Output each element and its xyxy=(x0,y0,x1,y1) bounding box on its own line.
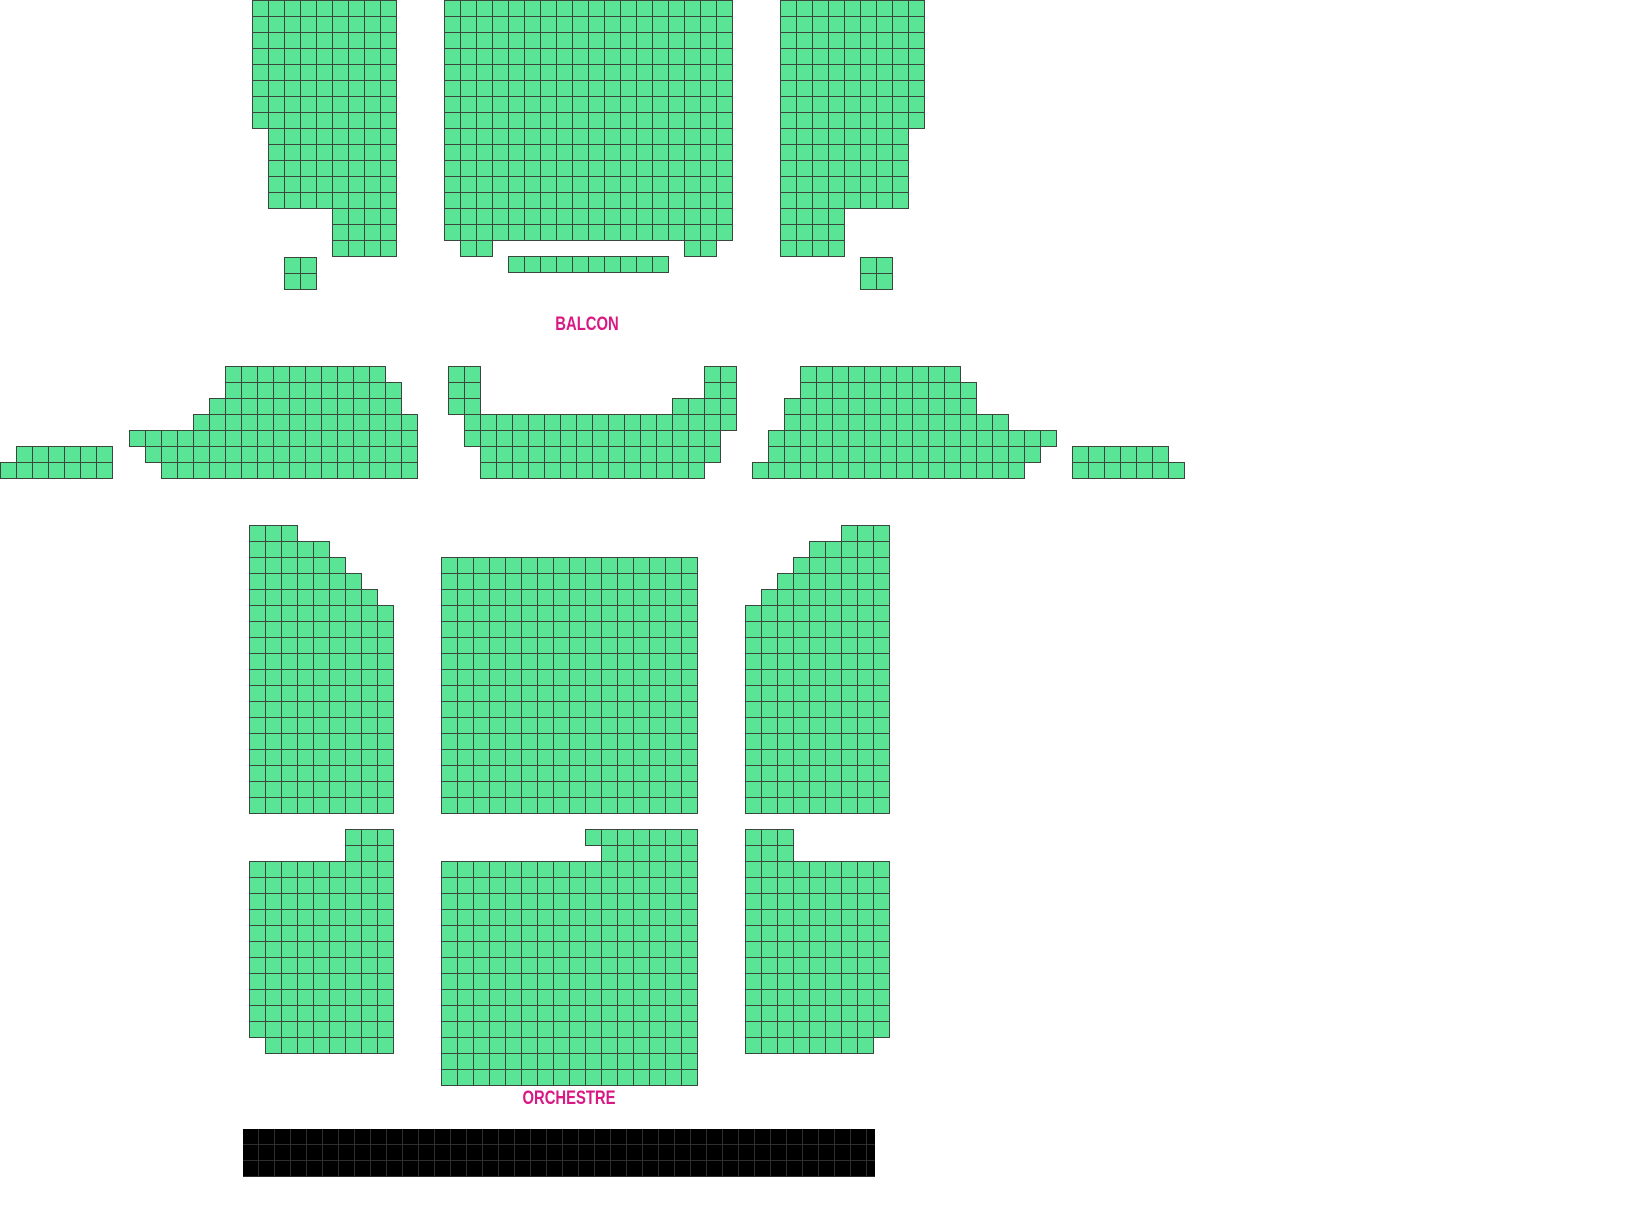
seat-map: BALCON MEZZANINE ORCHESTRE xyxy=(0,0,1626,1220)
stage xyxy=(243,1129,875,1177)
balcon-left-block[interactable] xyxy=(268,128,397,209)
balcon-right-block[interactable] xyxy=(860,257,893,290)
section-label-orchestre: ORCHESTRE xyxy=(522,1090,615,1108)
orchestre-bottom-center-block[interactable] xyxy=(601,845,698,862)
mezzanine-center-block[interactable] xyxy=(448,366,481,415)
orchestre-top-left-block[interactable] xyxy=(249,605,394,814)
mezzanine-left-block[interactable] xyxy=(225,382,402,399)
orchestre-bottom-right-block[interactable] xyxy=(745,829,794,862)
mezzanine-far-left-block[interactable] xyxy=(16,446,113,463)
balcon-left-block[interactable] xyxy=(252,0,397,129)
orchestre-top-left-block[interactable] xyxy=(249,541,330,558)
orchestre-bottom-left-block[interactable] xyxy=(249,861,394,1038)
balcon-left-block[interactable] xyxy=(332,208,397,257)
mezzanine-center-block[interactable] xyxy=(672,398,705,415)
balcon-center-block[interactable] xyxy=(684,240,717,257)
mezzanine-right-block[interactable] xyxy=(784,414,1009,431)
balcon-right-block[interactable] xyxy=(780,0,925,129)
orchestre-top-right-block[interactable] xyxy=(809,541,890,558)
section-label-balcon: BALCON xyxy=(555,316,618,334)
orchestre-top-right-block[interactable] xyxy=(793,557,890,574)
mezzanine-left-block[interactable] xyxy=(161,462,418,479)
orchestre-top-right-block[interactable] xyxy=(761,589,890,606)
mezzanine-right-block[interactable] xyxy=(768,446,1041,463)
balcon-right-block[interactable] xyxy=(780,208,845,257)
orchestre-top-left-block[interactable] xyxy=(249,573,362,590)
mezzanine-left-block[interactable] xyxy=(193,414,418,431)
mezzanine-far-left-block[interactable] xyxy=(0,462,113,479)
orchestre-bottom-center-block[interactable] xyxy=(585,829,698,846)
orchestre-top-right-block[interactable] xyxy=(841,525,890,542)
mezzanine-left-block[interactable] xyxy=(145,446,418,463)
orchestre-top-left-block[interactable] xyxy=(249,589,378,606)
mezzanine-right-block[interactable] xyxy=(800,366,961,383)
mezzanine-center-block[interactable] xyxy=(480,462,705,479)
mezzanine-far-right-block[interactable] xyxy=(1072,462,1185,479)
balcon-center-block[interactable] xyxy=(444,0,733,241)
mezzanine-right-block[interactable] xyxy=(800,382,977,399)
mezzanine-center-block[interactable] xyxy=(704,366,737,415)
orchestre-top-center-block[interactable] xyxy=(441,557,698,814)
balcon-left-block[interactable] xyxy=(284,257,317,290)
orchestre-top-left-block[interactable] xyxy=(249,525,298,542)
orchestre-bottom-right-block[interactable] xyxy=(745,1037,874,1054)
mezzanine-left-block[interactable] xyxy=(129,430,418,447)
balcon-right-block[interactable] xyxy=(780,128,909,209)
mezzanine-left-block[interactable] xyxy=(209,398,402,415)
orchestre-top-right-block[interactable] xyxy=(777,573,890,590)
balcon-center-block[interactable] xyxy=(508,256,669,273)
mezzanine-right-block[interactable] xyxy=(784,398,977,415)
mezzanine-center-block[interactable] xyxy=(480,446,721,463)
orchestre-bottom-center-block[interactable] xyxy=(441,861,698,1086)
mezzanine-right-block[interactable] xyxy=(768,430,1057,447)
mezzanine-center-block[interactable] xyxy=(464,414,737,431)
orchestre-top-right-block[interactable] xyxy=(745,605,890,814)
balcon-center-block[interactable] xyxy=(460,240,493,257)
orchestre-bottom-left-block[interactable] xyxy=(265,1037,394,1054)
orchestre-bottom-left-block[interactable] xyxy=(345,829,394,862)
orchestre-bottom-right-block[interactable] xyxy=(745,861,890,1038)
mezzanine-right-block[interactable] xyxy=(752,462,1025,479)
mezzanine-far-right-block[interactable] xyxy=(1072,446,1169,463)
mezzanine-left-block[interactable] xyxy=(225,366,386,383)
mezzanine-center-block[interactable] xyxy=(464,430,721,447)
orchestre-top-left-block[interactable] xyxy=(249,557,346,574)
